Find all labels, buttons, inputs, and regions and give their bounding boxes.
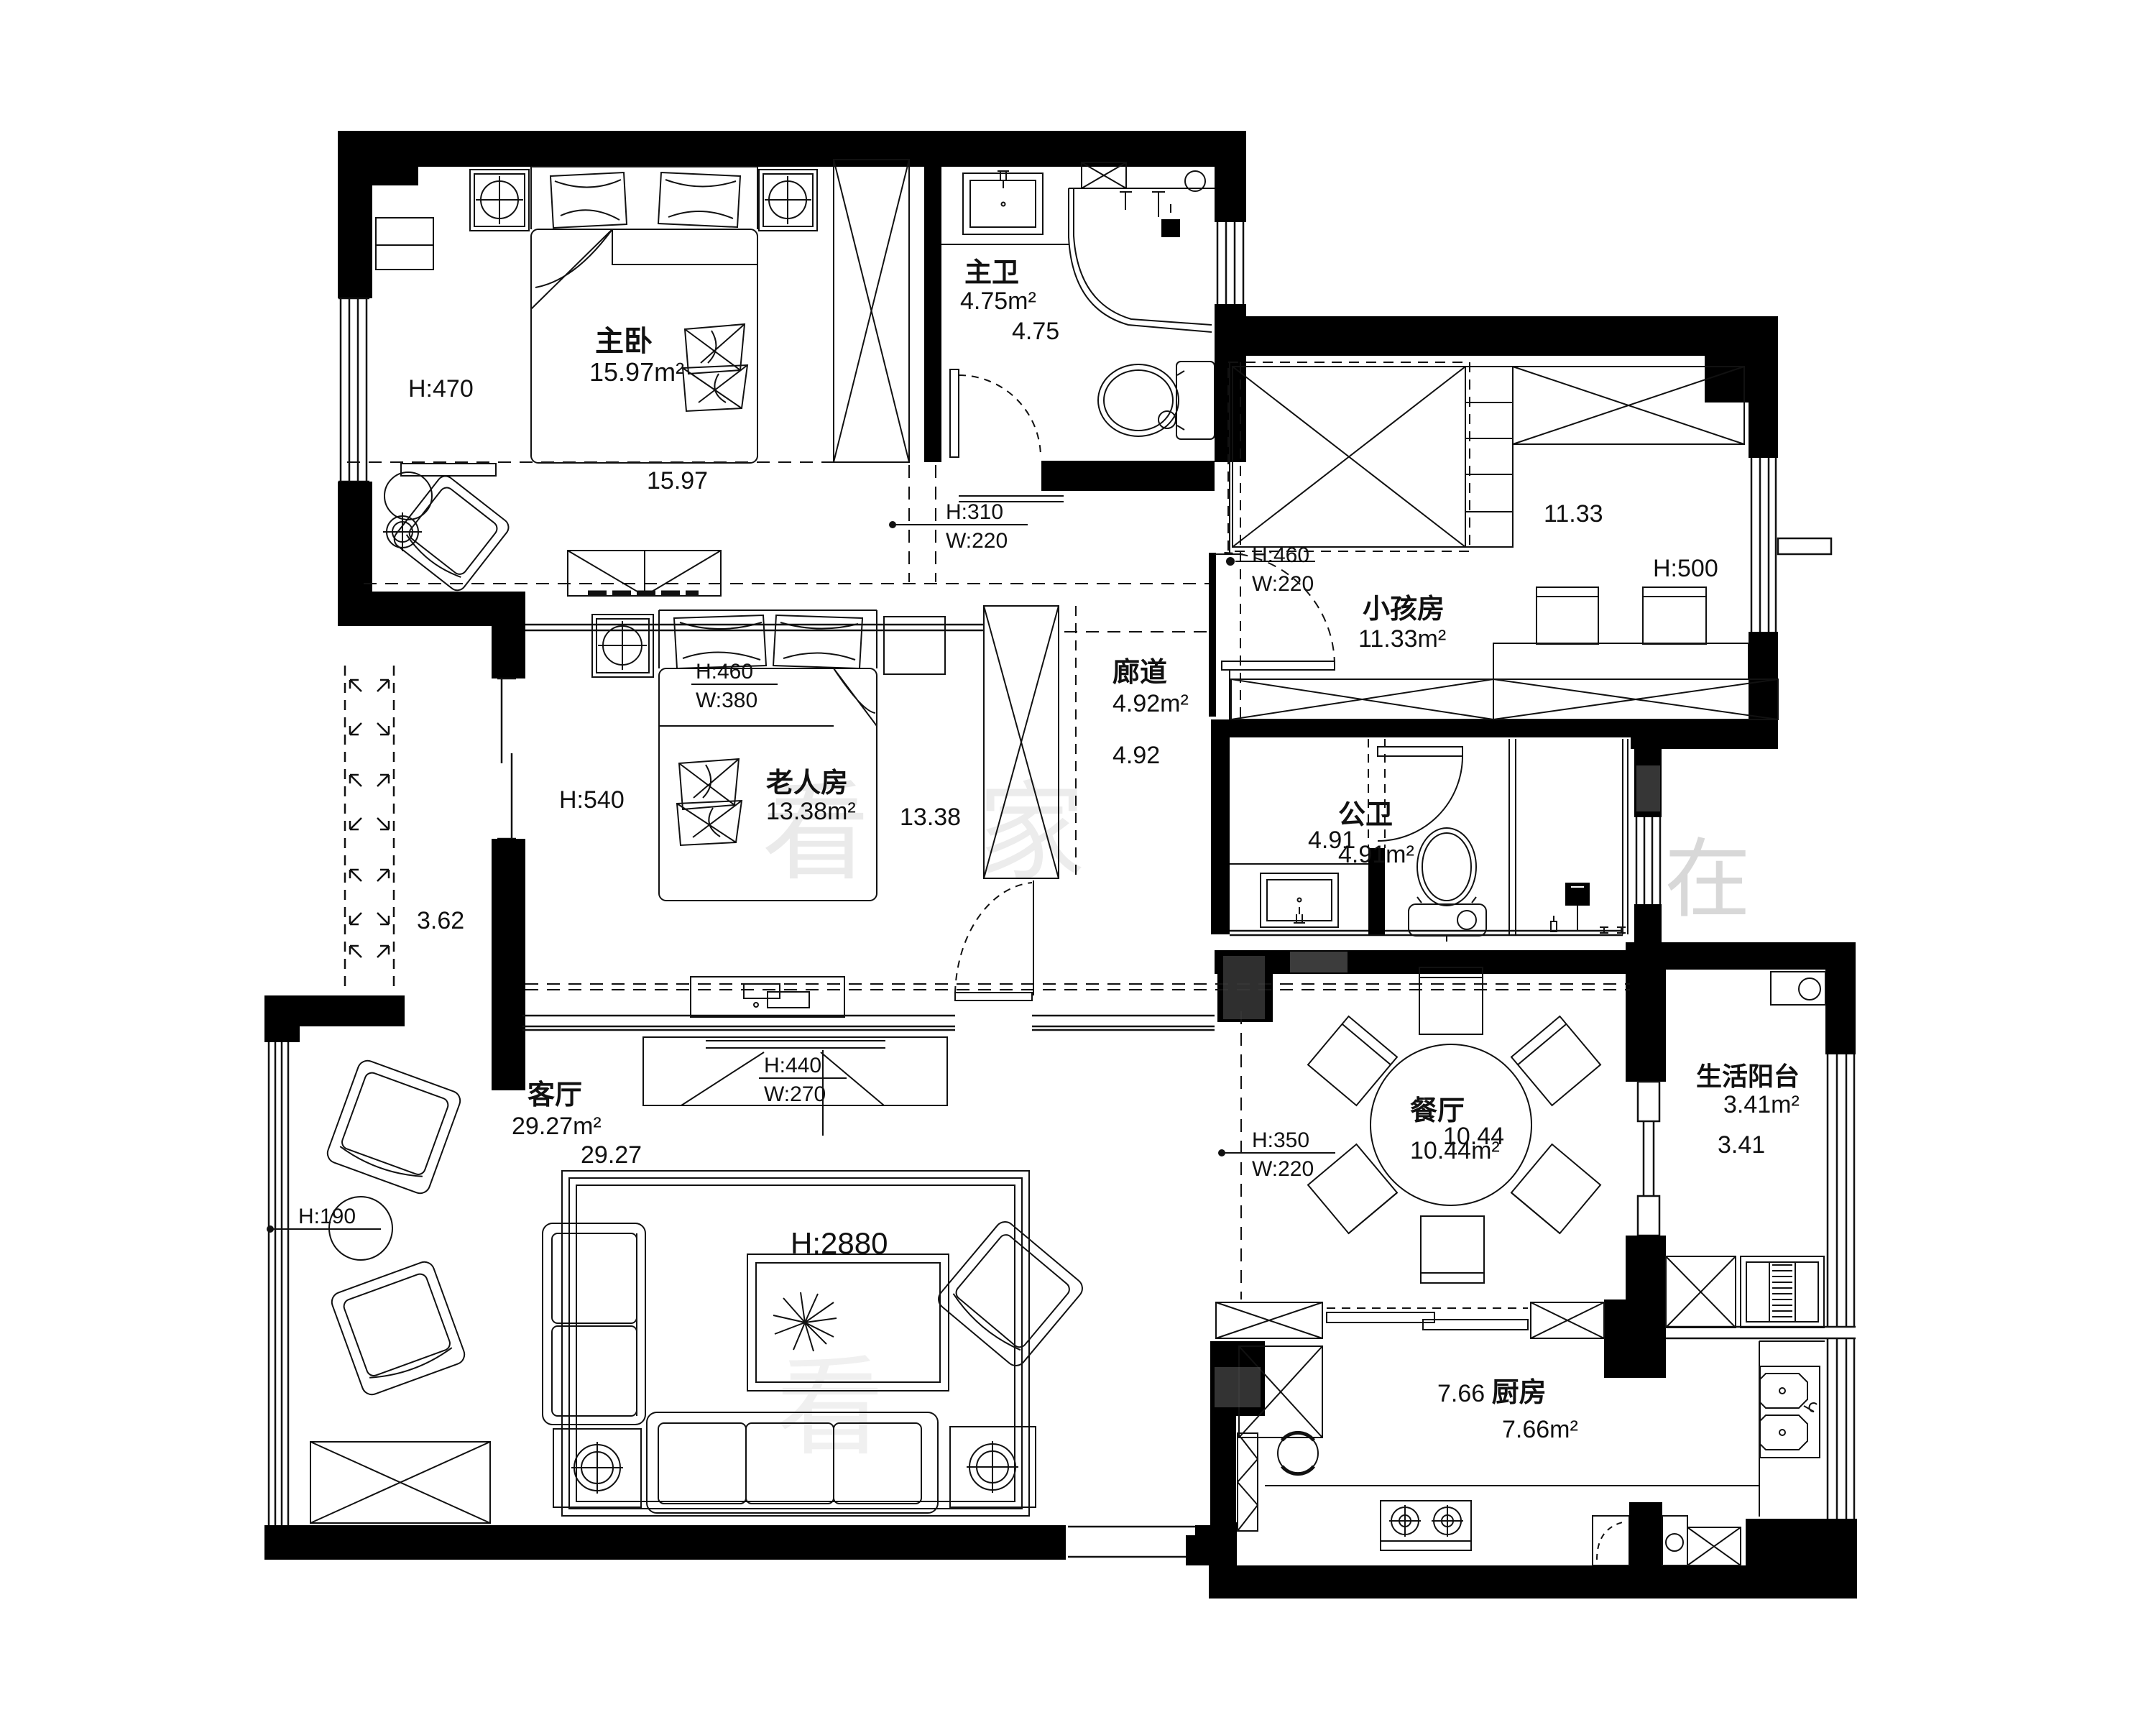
svg-text:H:190: H:190 (298, 1205, 356, 1228)
svg-text:11.33m²: 11.33m² (1358, 625, 1446, 653)
svg-text:H:440: H:440 (764, 1054, 821, 1077)
svg-text:H:460: H:460 (696, 660, 753, 684)
svg-text:生活阳台: 生活阳台 (1696, 1062, 1800, 1091)
svg-text:15.97m²: 15.97m² (589, 357, 684, 387)
svg-text:4.75m²: 4.75m² (960, 287, 1036, 315)
svg-text:W:270: W:270 (764, 1082, 826, 1106)
svg-text:H:470: H:470 (408, 375, 474, 402)
svg-text:13.38m²: 13.38m² (766, 798, 856, 825)
svg-text:4.92: 4.92 (1112, 742, 1160, 769)
svg-text:廊道: 廊道 (1112, 658, 1167, 688)
svg-text:11.33: 11.33 (1544, 500, 1603, 528)
svg-text:小孩房: 小孩房 (1363, 594, 1445, 625)
svg-text:W:220: W:220 (1252, 1157, 1314, 1181)
svg-text:3.62: 3.62 (417, 907, 464, 934)
svg-text:3.41m²: 3.41m² (1723, 1091, 1800, 1118)
svg-text:4.91m²: 4.91m² (1338, 841, 1414, 868)
svg-text:H:350: H:350 (1252, 1128, 1309, 1152)
svg-text:看: 看 (776, 1347, 884, 1468)
svg-text:H:460: H:460 (1252, 543, 1309, 567)
svg-text:主卧: 主卧 (595, 326, 653, 357)
svg-text:15.97: 15.97 (647, 467, 708, 494)
svg-text:29.27: 29.27 (581, 1141, 642, 1169)
svg-text:老人房: 老人房 (766, 768, 848, 799)
svg-text:W:220: W:220 (1252, 572, 1314, 596)
svg-text:主卫: 主卫 (964, 258, 1019, 288)
svg-text:客厅: 客厅 (528, 1080, 582, 1110)
svg-text:H:2880: H:2880 (791, 1226, 888, 1260)
svg-text:29.27m²: 29.27m² (512, 1113, 602, 1140)
svg-text:H:310: H:310 (946, 500, 1003, 524)
svg-text:家: 家 (977, 772, 1085, 893)
svg-text:公卫: 公卫 (1338, 800, 1393, 830)
svg-text:H:540: H:540 (559, 786, 625, 814)
svg-text:W:220: W:220 (946, 529, 1008, 553)
svg-text:4.75: 4.75 (1012, 318, 1059, 345)
svg-text:W:380: W:380 (696, 689, 757, 712)
svg-text:13.38: 13.38 (900, 804, 961, 831)
svg-text:7.66 厨房: 7.66 厨房 (1437, 1378, 1547, 1408)
svg-text:在: 在 (1664, 832, 1751, 928)
svg-text:7.66m²: 7.66m² (1502, 1416, 1578, 1443)
svg-text:10.44m²: 10.44m² (1410, 1137, 1500, 1164)
svg-text:4.92m²: 4.92m² (1112, 690, 1189, 717)
svg-text:H:500: H:500 (1653, 555, 1718, 582)
svg-text:餐厅: 餐厅 (1410, 1096, 1465, 1126)
svg-text:3.41: 3.41 (1718, 1131, 1765, 1159)
